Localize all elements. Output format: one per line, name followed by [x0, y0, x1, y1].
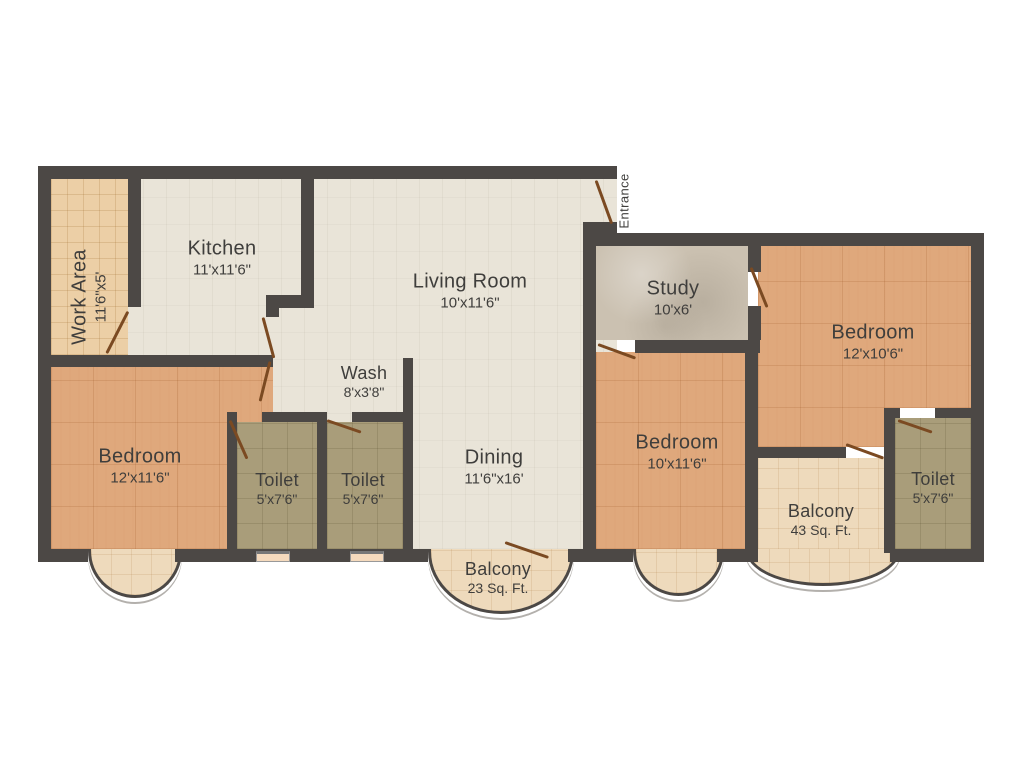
room-label-study: Study 10'x6' [647, 277, 700, 318]
bedroom-center-bay-window [633, 549, 724, 596]
room-name: Work Area [68, 249, 92, 345]
wall-wash-dining [403, 358, 413, 549]
room-name: Balcony [788, 501, 854, 522]
room-name: Toilet [341, 470, 385, 491]
wall-top-main [38, 166, 617, 179]
room-name: Bedroom [831, 321, 914, 345]
wall-living-right [583, 222, 596, 549]
wall-bedroom-center-right [745, 352, 758, 549]
room-name: Bedroom [98, 445, 181, 469]
room-label-wash: Wash 8'x3'8" [341, 363, 388, 401]
room-label-bedroom-left: Bedroom 12'x11'6" [98, 445, 181, 486]
wall-study-bedroom-b [748, 306, 761, 340]
room-label-toilet-left: Toilet 5'x7'6" [255, 470, 299, 508]
room-name: Balcony [465, 559, 531, 580]
room-name: Bedroom [635, 431, 718, 455]
wall-entrance-stub [596, 222, 617, 233]
balcony-large-arc [746, 549, 900, 586]
room-name: Kitchen [188, 237, 257, 261]
room-dims: 11'6"x5' [92, 249, 110, 345]
room-label-living-room: Living Room 10'x11'6" [413, 270, 527, 311]
wall-top-right-section [583, 233, 984, 246]
room-dims: 10'x11'6" [635, 455, 718, 473]
room-label-toilet-right: Toilet 5'x7'6" [911, 469, 955, 507]
room-dims: 5'x7'6" [911, 490, 955, 507]
room-dims: 8'x3'8" [341, 384, 388, 401]
wall-study-bottom [635, 340, 760, 353]
wall-workarea-kitchen [128, 179, 141, 307]
room-dims: 12'x11'6" [98, 469, 181, 487]
wall-toilet-divider [317, 422, 327, 549]
wall-bedroom-left-top [51, 355, 273, 367]
window-sill [350, 551, 384, 562]
wall-toilet-right-side [884, 408, 895, 553]
room-label-balcony-small: Balcony 23 Sq. Ft. [465, 559, 531, 597]
room-dims: 12'x10'6" [831, 345, 914, 363]
wall-kitchen-stub [266, 295, 279, 317]
room-name: Living Room [413, 270, 527, 294]
room-name: Wash [341, 363, 388, 384]
room-label-work-area: Work Area 11'6"x5' [68, 249, 109, 345]
wall-toilet-right-top-a [884, 408, 900, 418]
wall-bottom-2 [175, 549, 428, 562]
wall-bottom-3 [568, 549, 633, 562]
room-dims: 10'x11'6" [413, 294, 527, 312]
room-name: Toilet [911, 469, 955, 490]
wall-toilet-right-top-b [935, 408, 971, 418]
bedroom-right-floor-lower [758, 408, 884, 447]
wall-kitchen-living [301, 179, 314, 295]
wall-balcony-large-top [758, 447, 846, 458]
room-name: Toilet [255, 470, 299, 491]
room-label-bedroom-center: Bedroom 10'x11'6" [635, 431, 718, 472]
room-dims: 43 Sq. Ft. [788, 522, 854, 539]
room-label-dining: Dining 11'6"x16' [464, 446, 523, 487]
room-label-balcony-large: Balcony 43 Sq. Ft. [788, 501, 854, 539]
floor-plan: Work Area 11'6"x5' Kitchen 11'x11'6" Liv… [0, 0, 1024, 768]
room-label-kitchen: Kitchen 11'x11'6" [188, 237, 257, 278]
wall-bottom-1 [38, 549, 88, 562]
room-name: Study [647, 277, 700, 301]
wall-bottom-5 [890, 549, 984, 562]
room-label-toilet-mid: Toilet 5'x7'6" [341, 470, 385, 508]
room-label-bedroom-right: Bedroom 12'x10'6" [831, 321, 914, 362]
room-name: Entrance [616, 173, 631, 228]
room-dims: 11'x11'6" [188, 261, 257, 279]
room-dims: 5'x7'6" [341, 491, 385, 508]
wall-left-outer [38, 166, 51, 562]
room-dims: 11'6"x16' [464, 470, 523, 488]
window-sill [256, 551, 290, 562]
room-dims: 10'x6' [647, 301, 700, 319]
room-dims: 5'x7'6" [255, 491, 299, 508]
wall-toilets-top-b [262, 412, 327, 422]
wall-bottom-4 [717, 549, 758, 562]
room-name: Dining [464, 446, 523, 470]
room-dims: 23 Sq. Ft. [465, 580, 531, 597]
room-label-entrance: Entrance [616, 173, 631, 228]
bedroom-left-bay-window [88, 549, 182, 598]
wall-right-outer [971, 233, 984, 562]
